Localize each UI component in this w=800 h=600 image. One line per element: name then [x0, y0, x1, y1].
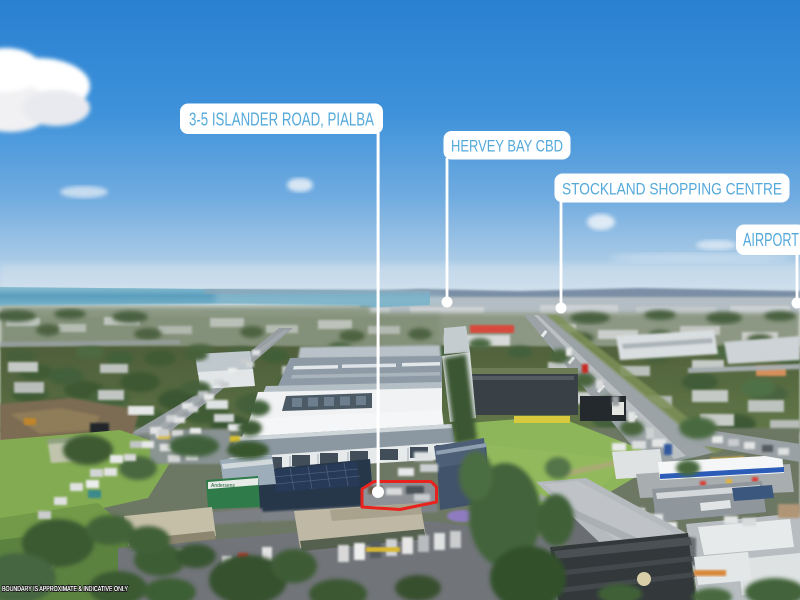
- svg-text:Andersens: Andersens: [211, 483, 235, 489]
- svg-text:AIRPORT: AIRPORT: [743, 230, 799, 250]
- svg-text:HERVEY BAY CBD: HERVEY BAY CBD: [451, 137, 563, 156]
- svg-text:BOUNDARY IS APPROXIMATE & INDI: BOUNDARY IS APPROXIMATE & INDICATIVE ONL…: [2, 586, 128, 593]
- svg-text:3-5 ISLANDER ROAD, PIALBA: 3-5 ISLANDER ROAD, PIALBA: [189, 110, 374, 130]
- svg-text:STOCKLAND SHOPPING CENTRE: STOCKLAND SHOPPING CENTRE: [562, 180, 782, 199]
